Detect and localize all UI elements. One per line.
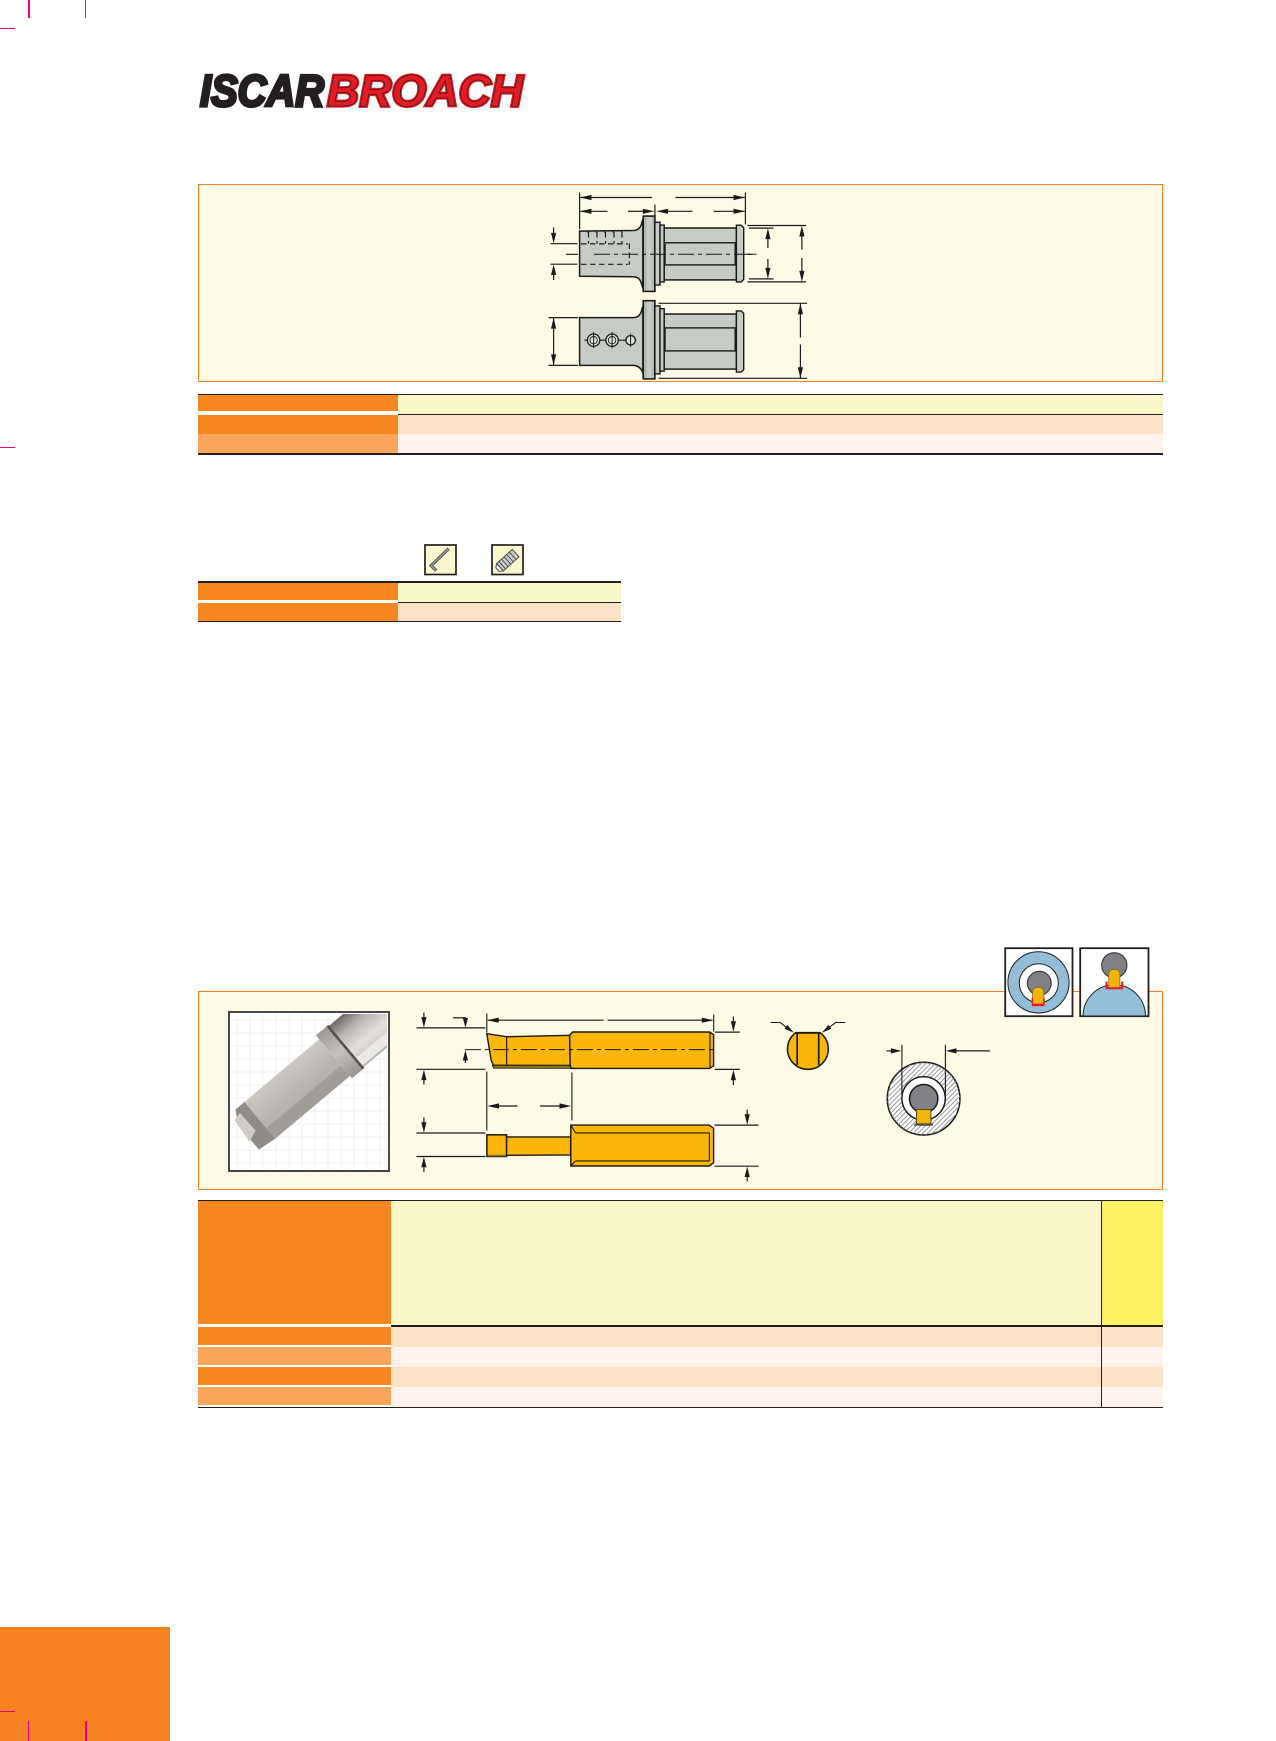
svg-text:BROACH: BROACH bbox=[327, 67, 524, 116]
svg-text:ISCAR: ISCAR bbox=[200, 67, 324, 116]
